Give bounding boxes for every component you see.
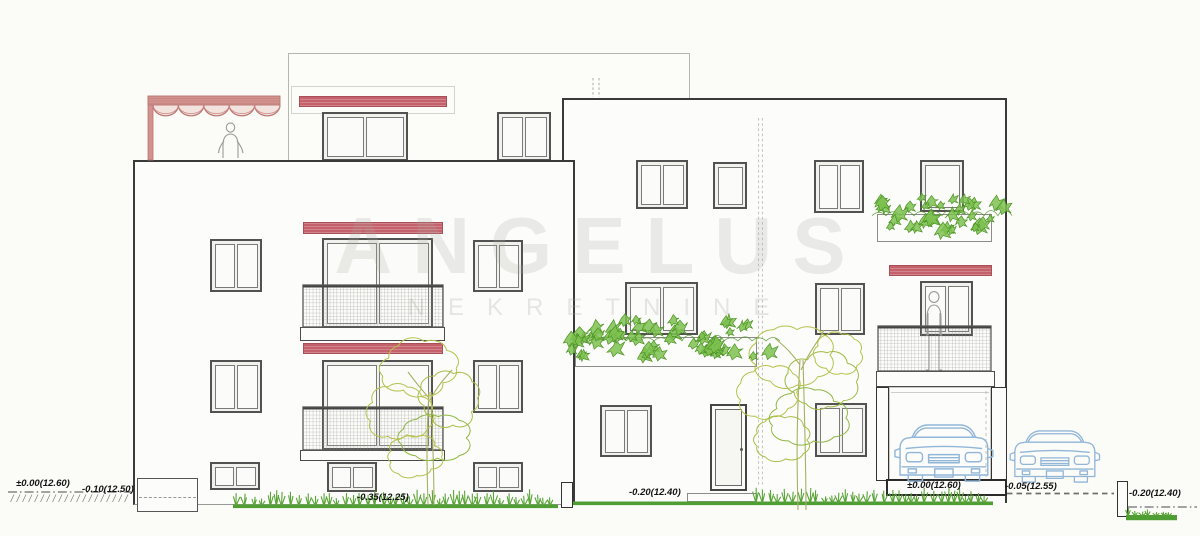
balcony-door [322,238,433,328]
cellar-box [137,478,198,512]
flower-planter [575,337,757,367]
boundary-pillar [561,482,573,508]
pergola [148,96,280,160]
penthouse-awning [299,96,447,107]
elevation-label: -0.20(12.40) [629,488,681,498]
elevation-label: -0.05(12.55) [1005,482,1057,492]
elevation-label: ±0.00(12.60) [16,479,70,489]
cellar-dashed-line [139,497,196,498]
balcony-door [920,281,973,336]
balcony-slab [300,450,445,461]
basement-window [473,462,523,492]
garage-column [876,387,889,481]
balcony-slab [876,371,995,387]
penthouse-window [497,112,551,161]
elevation-label: -0.35(12.25) [357,493,409,503]
entrance-step [687,493,757,502]
garage-lintel [891,392,989,393]
balcony-door [322,360,433,450]
basement-window [327,462,377,492]
balcony-awning [303,222,443,234]
window [920,160,964,212]
basement-window [210,462,260,490]
window [210,239,262,292]
balcony-awning [303,343,443,354]
window [625,282,698,335]
window [815,403,867,457]
elevation-label: -0.10(12.50) [82,485,134,495]
balcony-awning [889,265,992,276]
garage-column [991,387,1007,481]
window [636,160,688,209]
door-knob [740,448,743,451]
balcony-slab [300,327,445,341]
elevation-label: -0.20(12.40) [1129,489,1181,499]
window [600,405,652,457]
terrace-planter-parapet [877,214,992,242]
penthouse-terrace-door [322,112,408,161]
window [473,360,523,413]
window [210,360,262,413]
garage-opening [889,387,991,480]
person-on-roof-terrace [219,123,244,158]
window [473,240,523,292]
window [713,162,747,209]
elevation-drawing: ±0.00(12.60) -0.10(12.50) -0.35(12.25) -… [0,0,1200,536]
elevation-label: ±0.00(12.60) [907,481,961,491]
retaining-wall [1117,481,1128,517]
window [814,160,864,213]
window [815,283,865,335]
